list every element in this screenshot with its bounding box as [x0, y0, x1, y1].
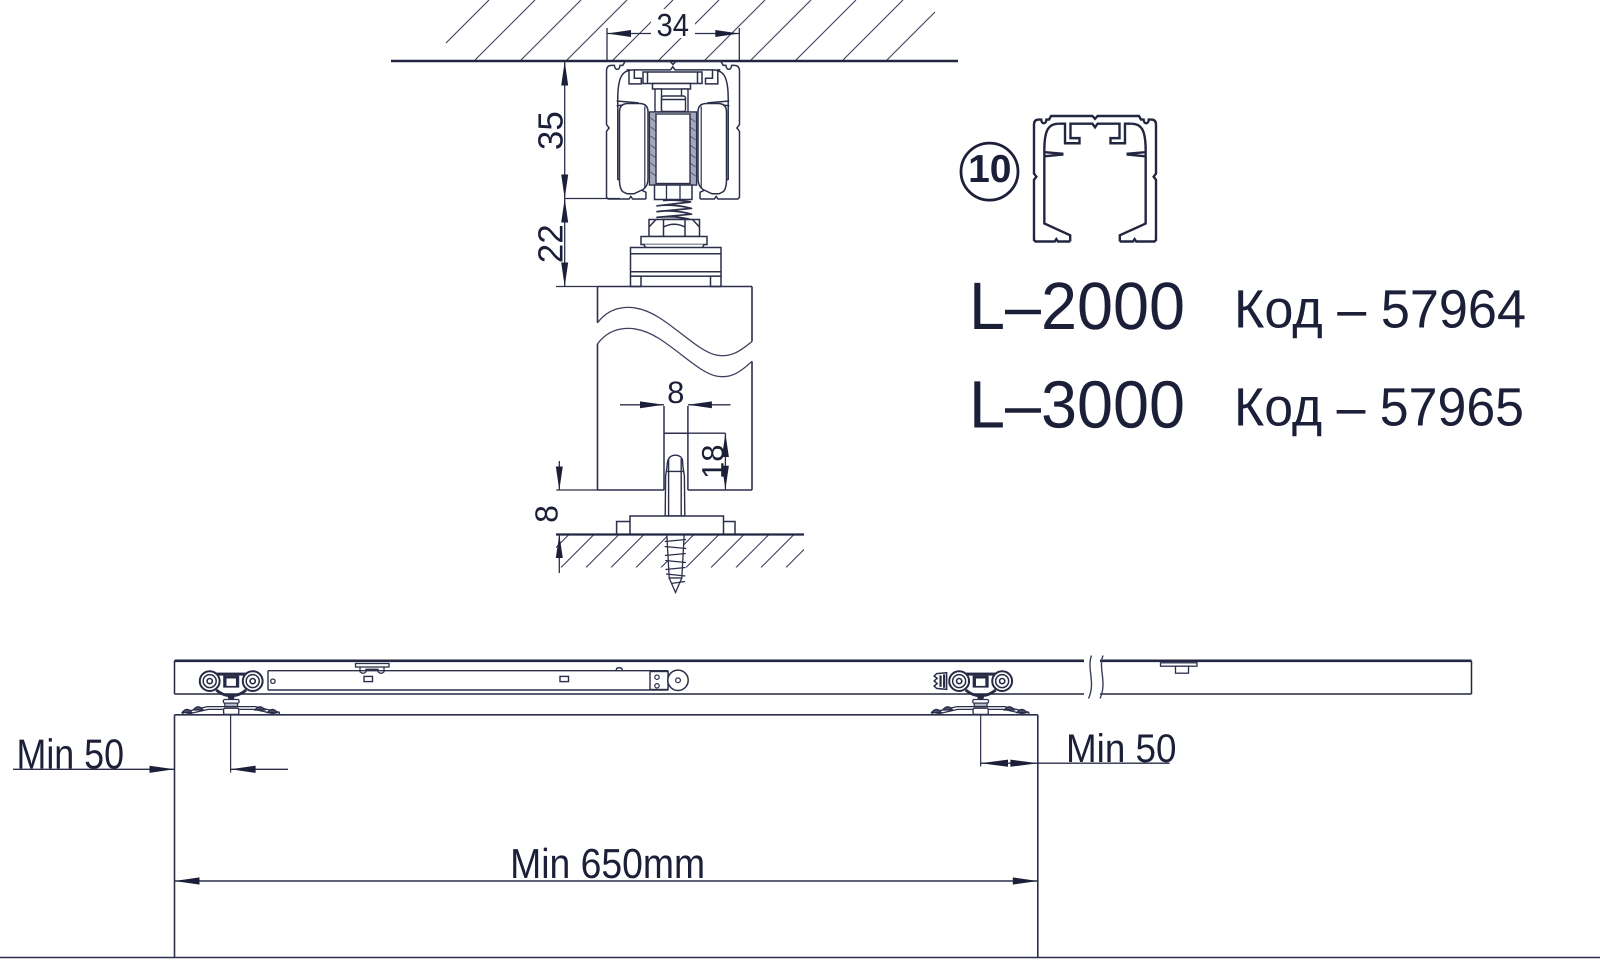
svg-text:L–2000: L–2000: [969, 269, 1185, 344]
svg-text:Min 650mm: Min 650mm: [510, 840, 705, 887]
svg-text:22: 22: [532, 224, 571, 263]
svg-text:8: 8: [667, 375, 684, 410]
svg-text:Min 50: Min 50: [1066, 727, 1177, 771]
svg-text:10: 10: [968, 148, 1011, 191]
svg-text:18: 18: [696, 445, 731, 479]
svg-text:Min 50: Min 50: [17, 730, 125, 777]
svg-text:L–3000: L–3000: [969, 368, 1185, 443]
svg-text:8: 8: [529, 505, 565, 523]
svg-text:Код – 57965: Код – 57965: [1234, 378, 1524, 438]
svg-text:Код – 57964: Код – 57964: [1234, 280, 1526, 340]
svg-text:35: 35: [532, 111, 571, 150]
svg-text:34: 34: [657, 7, 690, 43]
